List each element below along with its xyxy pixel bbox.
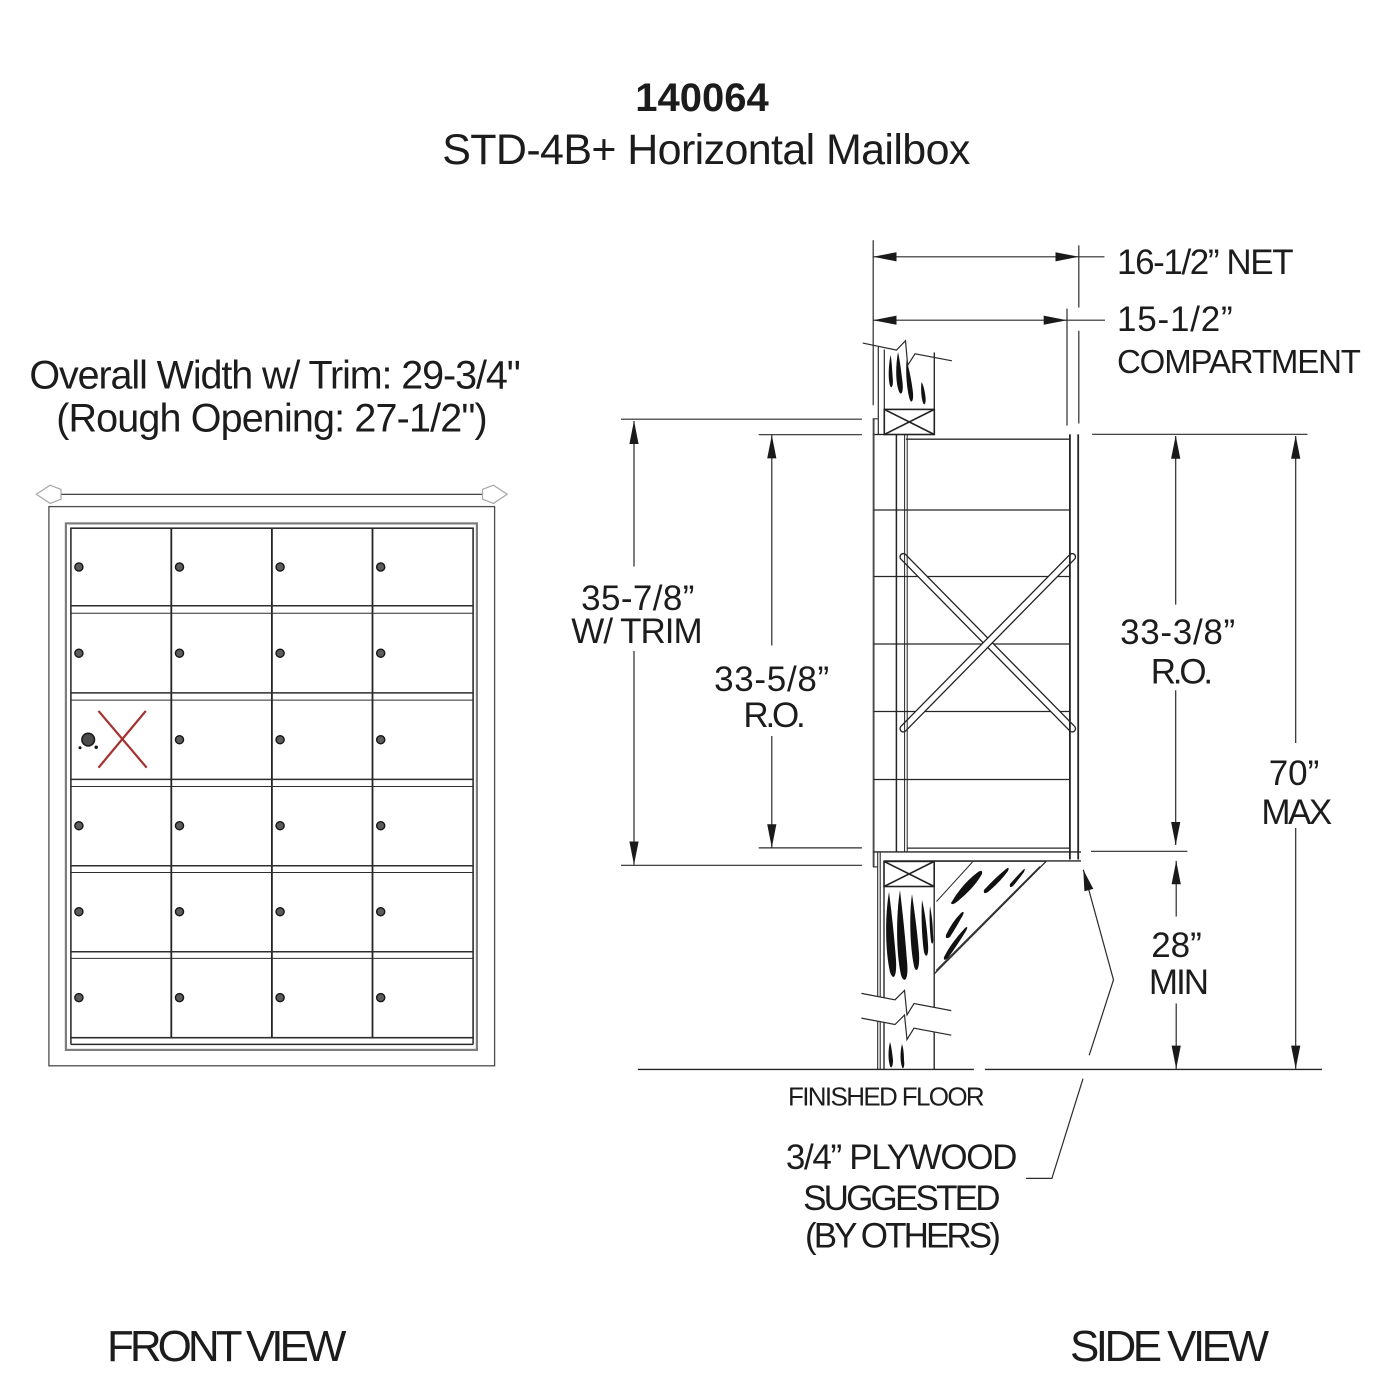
- svg-text:Overall Width w/ Trim: 29-3/4": Overall Width w/ Trim: 29-3/4": [29, 354, 519, 398]
- svg-text:SIDE VIEW: SIDE VIEW: [1070, 1322, 1269, 1371]
- svg-text:COMPARTMENT: COMPARTMENT: [1117, 343, 1361, 380]
- svg-text:SUGGESTED: SUGGESTED: [803, 1179, 999, 1218]
- svg-text:MAX: MAX: [1261, 793, 1332, 832]
- svg-text:3/4” PLYWOOD: 3/4” PLYWOOD: [786, 1138, 1016, 1177]
- svg-text:28”: 28”: [1151, 926, 1202, 965]
- svg-text:R.O.: R.O.: [1151, 652, 1211, 691]
- svg-text:33-5/8”: 33-5/8”: [714, 660, 830, 699]
- svg-text:16-1/2” NET: 16-1/2” NET: [1117, 243, 1293, 282]
- svg-text:MIN: MIN: [1149, 963, 1207, 1002]
- svg-text:W/ TRIM: W/ TRIM: [571, 612, 701, 651]
- svg-text:R.O.: R.O.: [743, 696, 803, 735]
- svg-text:15-1/2”: 15-1/2”: [1117, 300, 1234, 339]
- svg-text:70”: 70”: [1269, 754, 1320, 793]
- svg-text:(Rough Opening: 27-1/2"): (Rough Opening: 27-1/2"): [56, 397, 487, 441]
- svg-text:FINISHED FLOOR: FINISHED FLOOR: [788, 1082, 984, 1112]
- svg-text:FRONT VIEW: FRONT VIEW: [107, 1322, 347, 1371]
- svg-text:(BY OTHERS): (BY OTHERS): [805, 1217, 999, 1256]
- svg-text:140064: 140064: [635, 76, 769, 120]
- svg-text:33-3/8”: 33-3/8”: [1120, 613, 1236, 652]
- svg-text:STD-4B+ Horizontal Mailbox: STD-4B+ Horizontal Mailbox: [442, 126, 971, 174]
